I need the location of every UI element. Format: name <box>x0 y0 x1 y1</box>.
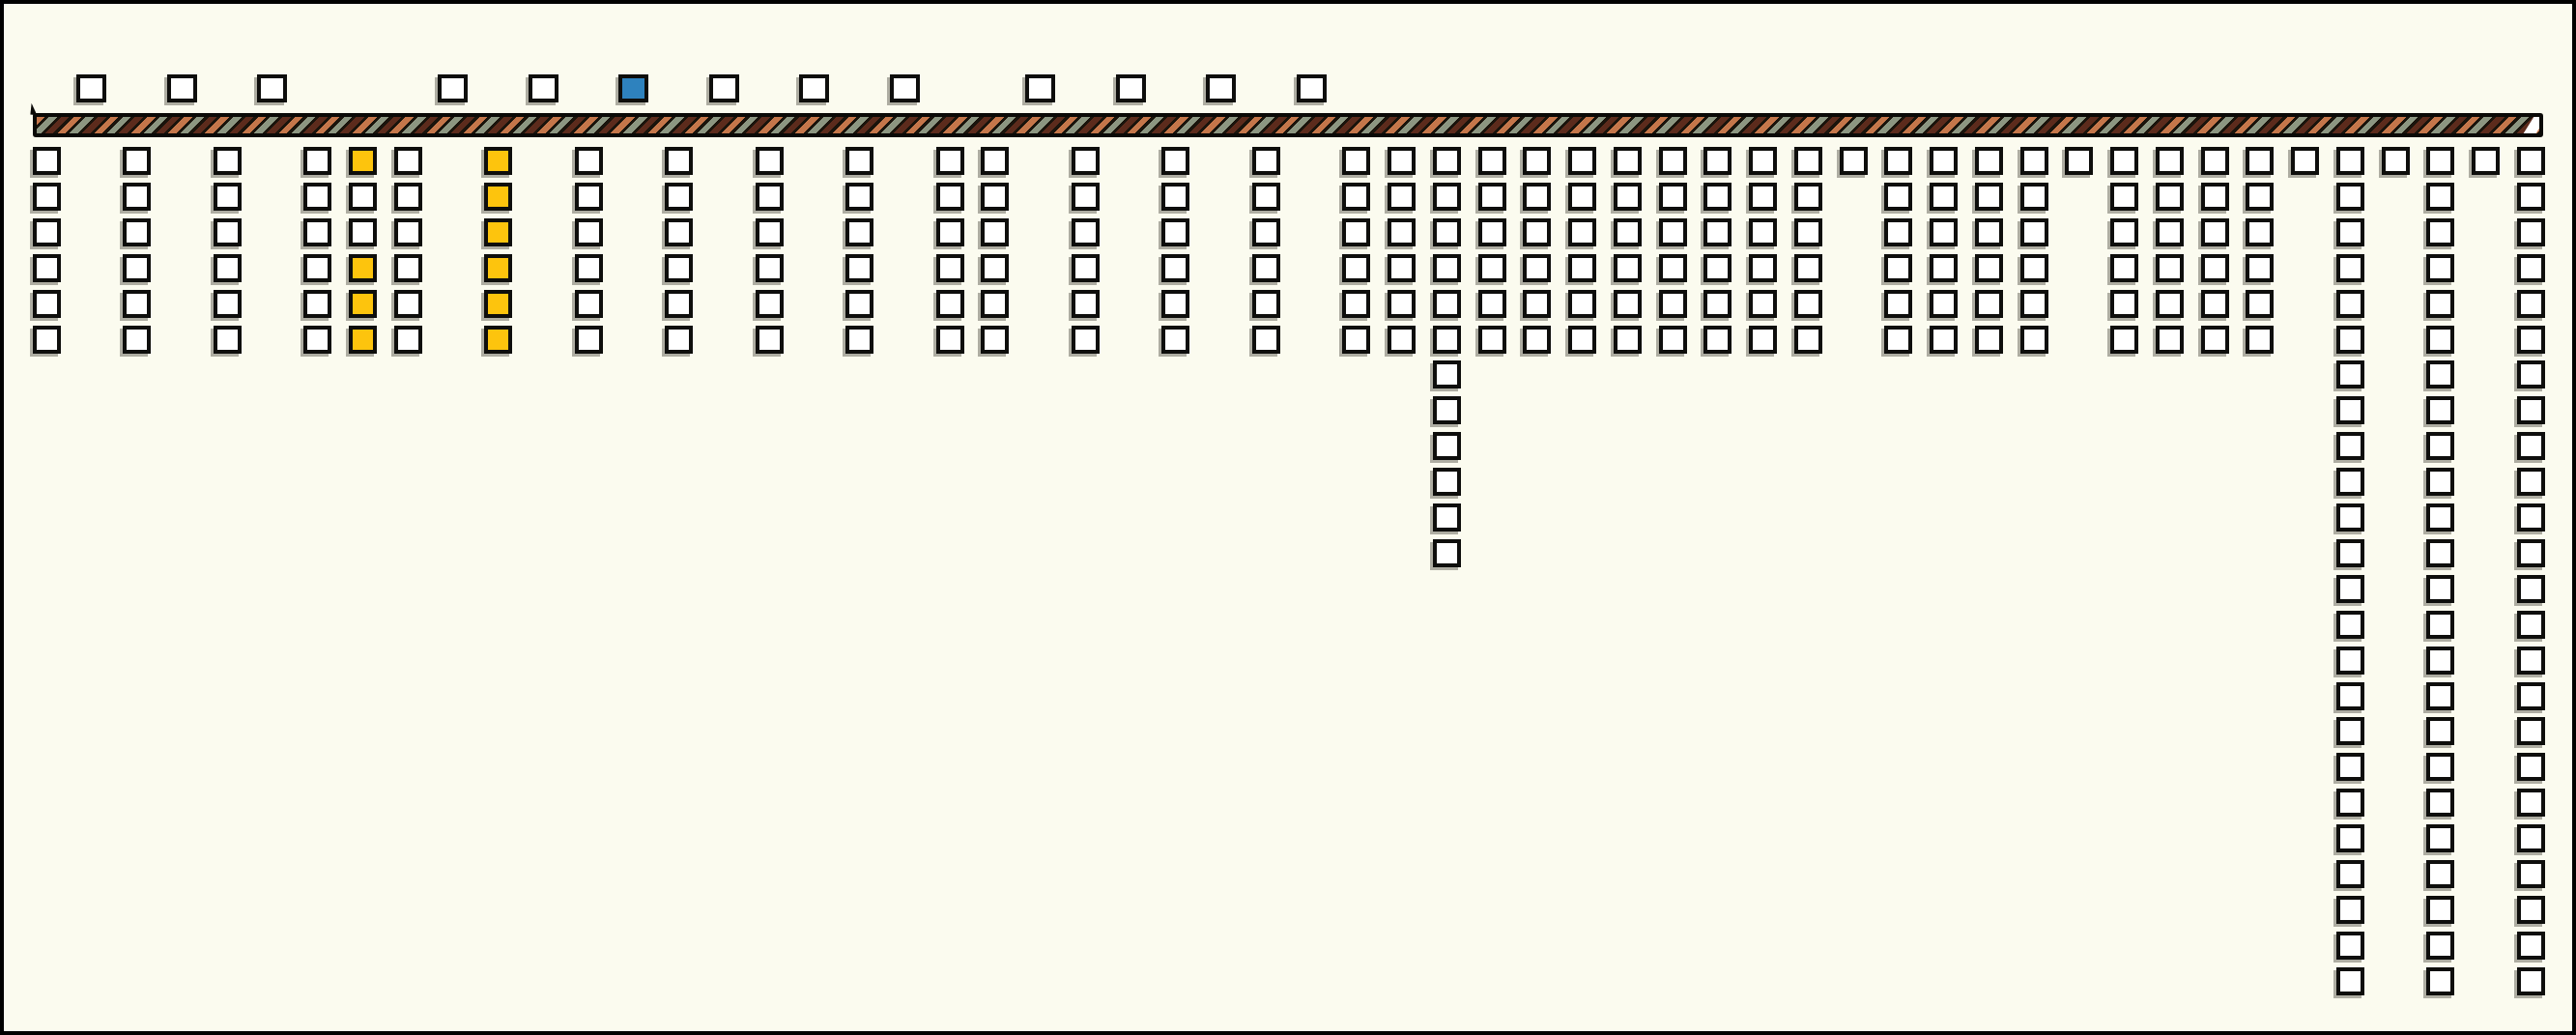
grid-square <box>2246 147 2274 175</box>
grid-square <box>1975 326 2003 354</box>
grid-square <box>1884 218 1912 246</box>
grid-square <box>2517 789 2545 817</box>
top-marker-square <box>167 74 197 102</box>
grid-square <box>1161 147 1189 175</box>
grid-square <box>1478 183 1506 211</box>
grid-square-yellow <box>484 254 512 282</box>
grid-square <box>2517 503 2545 532</box>
grid-square <box>1975 290 2003 318</box>
grid-square <box>303 254 331 282</box>
figure-canvas <box>0 0 2576 1035</box>
grid-square <box>2426 717 2454 745</box>
grid-square <box>1794 290 1822 318</box>
grid-square <box>1161 326 1189 354</box>
grid-square <box>2110 183 2138 211</box>
grid-square <box>2336 432 2364 460</box>
grid-square <box>2426 824 2454 852</box>
grid-square <box>1703 183 1732 211</box>
grid-square <box>936 183 964 211</box>
grid-square <box>2426 218 2454 246</box>
grid-square-yellow <box>484 326 512 354</box>
grid-square-yellow <box>484 183 512 211</box>
grid-square <box>2020 290 2048 318</box>
grid-square <box>2201 218 2229 246</box>
grid-square <box>303 326 331 354</box>
grid-square <box>1930 254 1958 282</box>
grid-square <box>394 218 422 246</box>
grid-square <box>1930 147 1958 175</box>
grid-square <box>2517 468 2545 496</box>
grid-square <box>123 147 151 175</box>
grid-square <box>33 326 61 354</box>
grid-square-yellow <box>484 290 512 318</box>
grid-square <box>2246 254 2274 282</box>
grid-square <box>1568 218 1596 246</box>
grid-square <box>1161 218 1189 246</box>
grid-square <box>214 254 242 282</box>
grid-square <box>1930 218 1958 246</box>
grid-square <box>1252 183 1280 211</box>
grid-square <box>33 218 61 246</box>
grid-square <box>1703 326 1732 354</box>
grid-square <box>2201 290 2229 318</box>
grid-square <box>303 290 331 318</box>
grid-square <box>2517 575 2545 603</box>
grid-square <box>2517 932 2545 960</box>
grid-square-yellow <box>349 254 377 282</box>
top-marker-square <box>257 74 287 102</box>
grid-square <box>2517 647 2545 675</box>
grid-square <box>1072 290 1100 318</box>
grid-square <box>2426 290 2454 318</box>
grid-square <box>981 254 1009 282</box>
grid-square-yellow <box>349 326 377 354</box>
grid-square <box>936 147 964 175</box>
grid-square <box>1252 326 1280 354</box>
grid-square <box>123 290 151 318</box>
grid-square <box>2426 753 2454 781</box>
grid-square <box>2201 254 2229 282</box>
grid-square <box>2156 147 2184 175</box>
grid-square <box>2517 717 2545 745</box>
grid-square <box>2156 183 2184 211</box>
grid-square <box>2426 932 2454 960</box>
grid-square <box>2336 717 2364 745</box>
grid-square <box>2336 326 2364 354</box>
grid-square <box>1478 326 1506 354</box>
grid-square <box>2517 611 2545 639</box>
top-marker-square <box>529 74 558 102</box>
grid-square <box>2426 967 2454 995</box>
grid-square <box>2156 290 2184 318</box>
grid-square <box>1614 218 1642 246</box>
grid-square <box>2517 290 2545 318</box>
grid-square <box>2336 575 2364 603</box>
grid-square <box>349 183 377 211</box>
grid-square <box>1342 147 1370 175</box>
grid-square <box>2201 147 2229 175</box>
grid-square <box>2336 360 2364 388</box>
grid-square <box>2246 290 2274 318</box>
grid-square <box>2336 539 2364 567</box>
grid-square <box>845 290 873 318</box>
grid-square <box>2156 254 2184 282</box>
grid-square <box>303 147 331 175</box>
grid-square <box>2246 218 2274 246</box>
grid-square <box>2336 218 2364 246</box>
grid-square <box>2336 254 2364 282</box>
grid-square <box>1388 326 1416 354</box>
grid-square <box>845 254 873 282</box>
grid-square <box>2020 254 2048 282</box>
grid-square <box>1749 254 1777 282</box>
grid-square <box>1659 254 1687 282</box>
grid-square <box>2517 682 2545 710</box>
grid-square <box>1433 147 1461 175</box>
top-marker-square-blue <box>618 74 648 102</box>
grid-square <box>2426 183 2454 211</box>
grid-square <box>1433 360 1461 388</box>
grid-square <box>2517 183 2545 211</box>
grid-square <box>2426 326 2454 354</box>
grid-square <box>1433 254 1461 282</box>
grid-square <box>2336 611 2364 639</box>
grid-square <box>1659 290 1687 318</box>
grid-square <box>1523 147 1551 175</box>
grid-square <box>1072 183 1100 211</box>
grid-square <box>665 254 693 282</box>
grid-square <box>1523 290 1551 318</box>
grid-square <box>1252 290 1280 318</box>
grid-square <box>214 326 242 354</box>
grid-square <box>2517 254 2545 282</box>
grid-square <box>2517 147 2545 175</box>
grid-square <box>2336 290 2364 318</box>
grid-square <box>1161 254 1189 282</box>
grid-square <box>2110 147 2138 175</box>
grid-square <box>2517 539 2545 567</box>
grid-square <box>1749 326 1777 354</box>
top-marker-square <box>709 74 739 102</box>
grid-square <box>33 147 61 175</box>
grid-square <box>1388 147 1416 175</box>
striped-bar-left-tip <box>30 103 38 116</box>
grid-square <box>1072 326 1100 354</box>
grid-square <box>1342 254 1370 282</box>
grid-square <box>394 183 422 211</box>
grid-square <box>665 326 693 354</box>
top-marker-square <box>1206 74 1236 102</box>
top-marker-square <box>1025 74 1055 102</box>
grid-square <box>1794 218 1822 246</box>
grid-square <box>1659 183 1687 211</box>
grid-square <box>1072 147 1100 175</box>
grid-square <box>1749 147 1777 175</box>
grid-square <box>1433 218 1461 246</box>
grid-square <box>845 147 873 175</box>
grid-square <box>2336 932 2364 960</box>
grid-square <box>2336 967 2364 995</box>
grid-square <box>756 218 784 246</box>
grid-square <box>1614 183 1642 211</box>
grid-square <box>1568 183 1596 211</box>
grid-square <box>1433 503 1461 532</box>
striped-bar <box>33 113 2543 137</box>
grid-square <box>1342 326 1370 354</box>
grid-square <box>2336 647 2364 675</box>
grid-square <box>1568 290 1596 318</box>
grid-square <box>1433 290 1461 318</box>
top-marker-square <box>799 74 829 102</box>
grid-square <box>1523 326 1551 354</box>
grid-square <box>394 254 422 282</box>
grid-square <box>1930 326 1958 354</box>
grid-square <box>2517 896 2545 924</box>
grid-square <box>123 326 151 354</box>
grid-square <box>2426 860 2454 888</box>
grid-square <box>1342 218 1370 246</box>
grid-square <box>1659 147 1687 175</box>
grid-square <box>123 254 151 282</box>
grid-square <box>665 290 693 318</box>
grid-square <box>1433 468 1461 496</box>
grid-square <box>1659 326 1687 354</box>
grid-square <box>2110 218 2138 246</box>
grid-square <box>1794 147 1822 175</box>
grid-square <box>1659 218 1687 246</box>
grid-square <box>981 326 1009 354</box>
grid-square <box>2156 326 2184 354</box>
grid-square <box>1342 290 1370 318</box>
grid-square <box>2426 360 2454 388</box>
grid-square <box>2426 468 2454 496</box>
grid-square <box>1884 326 1912 354</box>
grid-square <box>1884 147 1912 175</box>
grid-square <box>1072 254 1100 282</box>
grid-square <box>2156 218 2184 246</box>
grid-square <box>1884 254 1912 282</box>
grid-square <box>1161 183 1189 211</box>
grid-square <box>2065 147 2093 175</box>
top-marker-square <box>1297 74 1327 102</box>
grid-square <box>1388 254 1416 282</box>
grid-square <box>2517 824 2545 852</box>
grid-square <box>575 147 603 175</box>
grid-square <box>981 183 1009 211</box>
grid-square <box>33 290 61 318</box>
grid-square <box>394 290 422 318</box>
grid-square <box>2336 896 2364 924</box>
grid-square <box>2110 254 2138 282</box>
grid-square <box>1388 183 1416 211</box>
grid-square <box>1749 218 1777 246</box>
grid-square <box>575 218 603 246</box>
grid-square-yellow <box>349 147 377 175</box>
grid-square <box>1703 254 1732 282</box>
grid-square <box>1930 183 1958 211</box>
grid-square <box>1794 254 1822 282</box>
top-marker-square <box>76 74 106 102</box>
grid-square <box>936 326 964 354</box>
grid-square <box>2336 789 2364 817</box>
grid-square <box>1478 290 1506 318</box>
grid-square-yellow <box>484 218 512 246</box>
grid-square <box>2426 789 2454 817</box>
grid-square <box>2517 753 2545 781</box>
figure-frame <box>0 0 2576 1035</box>
grid-square <box>349 218 377 246</box>
grid-square <box>2336 147 2364 175</box>
grid-square <box>2201 183 2229 211</box>
grid-square <box>1840 147 1868 175</box>
grid-square <box>1252 147 1280 175</box>
grid-square <box>1930 290 1958 318</box>
grid-square <box>1433 326 1461 354</box>
grid-square <box>665 183 693 211</box>
grid-square <box>2336 824 2364 852</box>
grid-square <box>214 183 242 211</box>
grid-square <box>1568 254 1596 282</box>
grid-square <box>845 218 873 246</box>
grid-square <box>2426 647 2454 675</box>
grid-square <box>1614 254 1642 282</box>
grid-square <box>1975 183 2003 211</box>
grid-square <box>665 218 693 246</box>
grid-square <box>2517 860 2545 888</box>
grid-square <box>1523 183 1551 211</box>
grid-square <box>575 290 603 318</box>
grid-square <box>1388 290 1416 318</box>
grid-square <box>2426 682 2454 710</box>
grid-square <box>2201 326 2229 354</box>
grid-square <box>981 290 1009 318</box>
grid-square <box>2426 254 2454 282</box>
grid-square <box>1703 147 1732 175</box>
grid-square <box>1252 218 1280 246</box>
grid-square <box>1975 254 2003 282</box>
grid-square <box>575 183 603 211</box>
grid-square <box>1703 218 1732 246</box>
grid-square <box>1523 218 1551 246</box>
grid-square <box>2020 183 2048 211</box>
grid-square <box>2382 147 2410 175</box>
grid-square <box>303 218 331 246</box>
grid-square <box>2517 360 2545 388</box>
grid-square <box>845 183 873 211</box>
grid-square <box>2246 183 2274 211</box>
grid-square <box>2426 147 2454 175</box>
grid-square <box>1388 218 1416 246</box>
grid-square <box>1568 147 1596 175</box>
grid-square <box>2472 147 2500 175</box>
grid-square <box>936 254 964 282</box>
grid-square <box>2426 432 2454 460</box>
grid-square <box>1794 326 1822 354</box>
grid-square <box>2020 326 2048 354</box>
grid-square <box>1433 183 1461 211</box>
grid-square <box>2291 147 2319 175</box>
grid-square <box>756 183 784 211</box>
grid-square <box>2426 503 2454 532</box>
grid-square <box>665 147 693 175</box>
grid-square-yellow <box>349 290 377 318</box>
grid-square <box>2020 147 2048 175</box>
grid-square <box>1568 326 1596 354</box>
grid-square <box>845 326 873 354</box>
grid-square <box>1433 396 1461 424</box>
top-marker-square <box>890 74 920 102</box>
grid-square <box>2426 575 2454 603</box>
grid-square <box>1975 147 2003 175</box>
grid-square <box>981 218 1009 246</box>
grid-square <box>1703 290 1732 318</box>
grid-square <box>214 218 242 246</box>
grid-square <box>2336 396 2364 424</box>
grid-square <box>1478 147 1506 175</box>
grid-square <box>1975 218 2003 246</box>
grid-square <box>2517 432 2545 460</box>
grid-square <box>1749 183 1777 211</box>
grid-square <box>2517 967 2545 995</box>
grid-square <box>2517 396 2545 424</box>
grid-square <box>394 147 422 175</box>
grid-square <box>1433 432 1461 460</box>
grid-square <box>756 254 784 282</box>
grid-square <box>33 183 61 211</box>
grid-square <box>2517 218 2545 246</box>
grid-square <box>1884 183 1912 211</box>
grid-square <box>394 326 422 354</box>
grid-square <box>1523 254 1551 282</box>
grid-square <box>33 254 61 282</box>
grid-square <box>2426 611 2454 639</box>
grid-square <box>214 290 242 318</box>
grid-square <box>756 326 784 354</box>
grid-square <box>2110 326 2138 354</box>
grid-square <box>2246 326 2274 354</box>
grid-square <box>123 183 151 211</box>
grid-square-yellow <box>484 147 512 175</box>
grid-square <box>2336 682 2364 710</box>
grid-square <box>2336 753 2364 781</box>
grid-square <box>2336 183 2364 211</box>
grid-square <box>2336 503 2364 532</box>
top-marker-square <box>1116 74 1146 102</box>
grid-square <box>936 290 964 318</box>
grid-square <box>2426 539 2454 567</box>
grid-square <box>1614 326 1642 354</box>
grid-square <box>1252 254 1280 282</box>
grid-square <box>575 254 603 282</box>
grid-square <box>2110 290 2138 318</box>
grid-square <box>981 147 1009 175</box>
grid-square <box>1749 290 1777 318</box>
grid-square <box>1433 539 1461 567</box>
grid-square <box>214 147 242 175</box>
grid-square <box>303 183 331 211</box>
grid-square <box>1794 183 1822 211</box>
top-marker-square <box>438 74 468 102</box>
grid-square <box>1614 290 1642 318</box>
grid-square <box>2020 218 2048 246</box>
grid-square <box>2336 468 2364 496</box>
grid-square <box>1478 218 1506 246</box>
grid-square <box>123 218 151 246</box>
grid-square <box>1342 183 1370 211</box>
grid-square <box>2336 860 2364 888</box>
grid-square <box>1884 290 1912 318</box>
grid-square <box>1478 254 1506 282</box>
